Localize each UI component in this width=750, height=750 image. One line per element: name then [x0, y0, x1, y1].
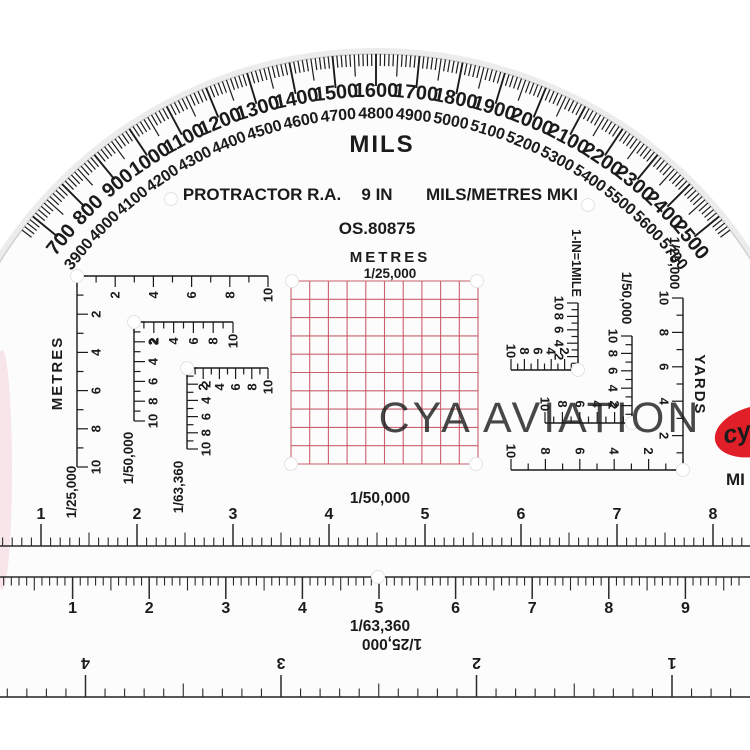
scale-number: 10 [199, 442, 214, 456]
scale-number: 8 [89, 425, 104, 432]
ruler-number: 2 [472, 654, 481, 671]
scale-number: 4 [552, 340, 567, 348]
punch-hole [470, 458, 483, 471]
ruler-number: 5 [421, 506, 430, 523]
ruler-number: 3 [276, 654, 285, 671]
ruler-number: 1 [37, 506, 46, 523]
scale-number: 6 [657, 363, 672, 370]
ruler-number: 7 [528, 600, 537, 617]
scale-number: 10 [552, 296, 567, 310]
punch-hole [165, 193, 178, 206]
scale-number: 10 [504, 444, 519, 458]
ruler-number: 5 [375, 600, 384, 617]
scale-number: 4 [146, 357, 161, 365]
scale-number: 8 [146, 398, 161, 405]
scale-number: 6 [186, 337, 201, 344]
punch-hole [677, 464, 690, 477]
scale-number: 8 [606, 350, 621, 357]
scale-number: 4 [607, 447, 622, 455]
scale-number: 6 [184, 291, 199, 298]
ruler-label-63360: 1/63,360 [350, 618, 410, 635]
scale-number: 10 [606, 329, 621, 343]
punch-hole [372, 571, 385, 584]
scale-number: 6 [552, 326, 567, 333]
scale-number: 6 [89, 387, 104, 394]
right-scale-1in1mile-label: 1-IN=1MILE [569, 229, 583, 297]
punch-hole [471, 275, 484, 288]
mils-heading: MILS [349, 131, 414, 158]
punch-hole [582, 199, 595, 212]
scale-number: 4 [146, 291, 161, 299]
scale-number: 8 [244, 383, 259, 390]
product-spec: MILS/METRES MKI [426, 185, 578, 204]
ruler-number: 4 [298, 600, 307, 617]
scale-number: 4 [606, 385, 621, 393]
romer-grid-title: METRES [350, 249, 431, 266]
ruler-number: 9 [681, 600, 690, 617]
scale-number: 2 [146, 338, 161, 345]
arc-tick [350, 55, 351, 67]
arc-tick [401, 55, 402, 67]
watermark: CYA AVIATION [379, 394, 702, 442]
scale-number: 10 [657, 291, 672, 305]
scale-number: 8 [657, 329, 672, 336]
left-scale-25000-label: 1/25,000 [64, 466, 79, 519]
punch-hole [285, 458, 298, 471]
ruler-number: 4 [325, 506, 334, 523]
punch-hole [181, 362, 194, 375]
ruler-number: 6 [451, 600, 460, 617]
romer-grid-scale: 1/25,000 [364, 266, 417, 281]
ruler-label-50000: 1/50,000 [350, 490, 410, 507]
scale-number: 6 [199, 413, 214, 420]
ruler-number: 3 [229, 506, 238, 523]
ruler-number: 1 [68, 600, 77, 617]
left-scale-50000-label: 1/50,000 [121, 432, 136, 485]
scale-number: 4 [89, 348, 104, 356]
ruler-number: 2 [133, 506, 142, 523]
right-scale-25000-label: 1/25,000 [667, 237, 682, 290]
left-scale-63360-label: 1/63,360 [171, 461, 186, 514]
right-scale-50000-label: 1/50,000 [619, 272, 634, 325]
scale-number: 2 [641, 447, 656, 454]
ruler-number: 8 [709, 506, 718, 523]
punch-hole [128, 316, 141, 329]
scale-number: 6 [606, 367, 621, 374]
ruler-label-25000-inverted: 1/25,000 [362, 635, 422, 652]
logo-text: cy [720, 416, 750, 449]
scale-number: 6 [572, 447, 587, 454]
punch-hole [71, 270, 84, 283]
punch-hole [286, 275, 299, 288]
protractor-product-photo: 7003900800400090041001000420011004300120… [0, 0, 750, 750]
arc-label-inner: 4900 [395, 106, 432, 126]
scale-number: 2 [89, 311, 104, 318]
scale-number: 6 [228, 383, 243, 390]
scale-number: 10 [261, 380, 276, 394]
scale-number: 8 [552, 313, 567, 320]
scale-number: 10 [89, 460, 104, 474]
arc-label-inner: 4800 [358, 106, 394, 123]
scale-number: 4 [212, 383, 227, 391]
ruler-number: 7 [613, 506, 622, 523]
arc-label-inner: 4700 [320, 106, 357, 126]
scale-number: 8 [538, 447, 553, 454]
ruler-number: 2 [145, 600, 154, 617]
scale-number: 8 [222, 291, 237, 298]
ruler-number: 3 [221, 600, 230, 617]
scale-number: 10 [146, 414, 161, 428]
product-size: 9 IN [361, 185, 392, 204]
scale-number: 10 [226, 334, 241, 348]
arc-label-outer: 1600 [354, 80, 399, 102]
scale-number: 6 [146, 378, 161, 385]
scale-number: 4 [199, 396, 214, 404]
arc-label-outer: 1500 [313, 80, 359, 106]
ruler-number: 4 [81, 654, 90, 671]
ruler-number: 8 [604, 600, 613, 617]
scale-number: 10 [504, 344, 519, 358]
arc-tick [406, 55, 407, 67]
left-scale-metres-label: METRES [49, 336, 66, 411]
ruler-number: 1 [667, 654, 676, 671]
ruler-number: 6 [517, 506, 526, 523]
arc-tick [346, 55, 347, 67]
punch-hole [572, 364, 585, 377]
logo-caption: MI [726, 470, 745, 489]
product-name: PROTRACTOR R.A. [183, 185, 341, 204]
scale-number: 10 [261, 288, 276, 302]
model-number: OS.80875 [339, 219, 416, 238]
scale-number: 8 [199, 429, 214, 436]
scale-number: 4 [166, 337, 181, 345]
protractor-svg: 7003900800400090041001000420011004300120… [0, 0, 750, 750]
scale-number: 8 [206, 337, 221, 344]
scale-number: 2 [108, 291, 123, 298]
